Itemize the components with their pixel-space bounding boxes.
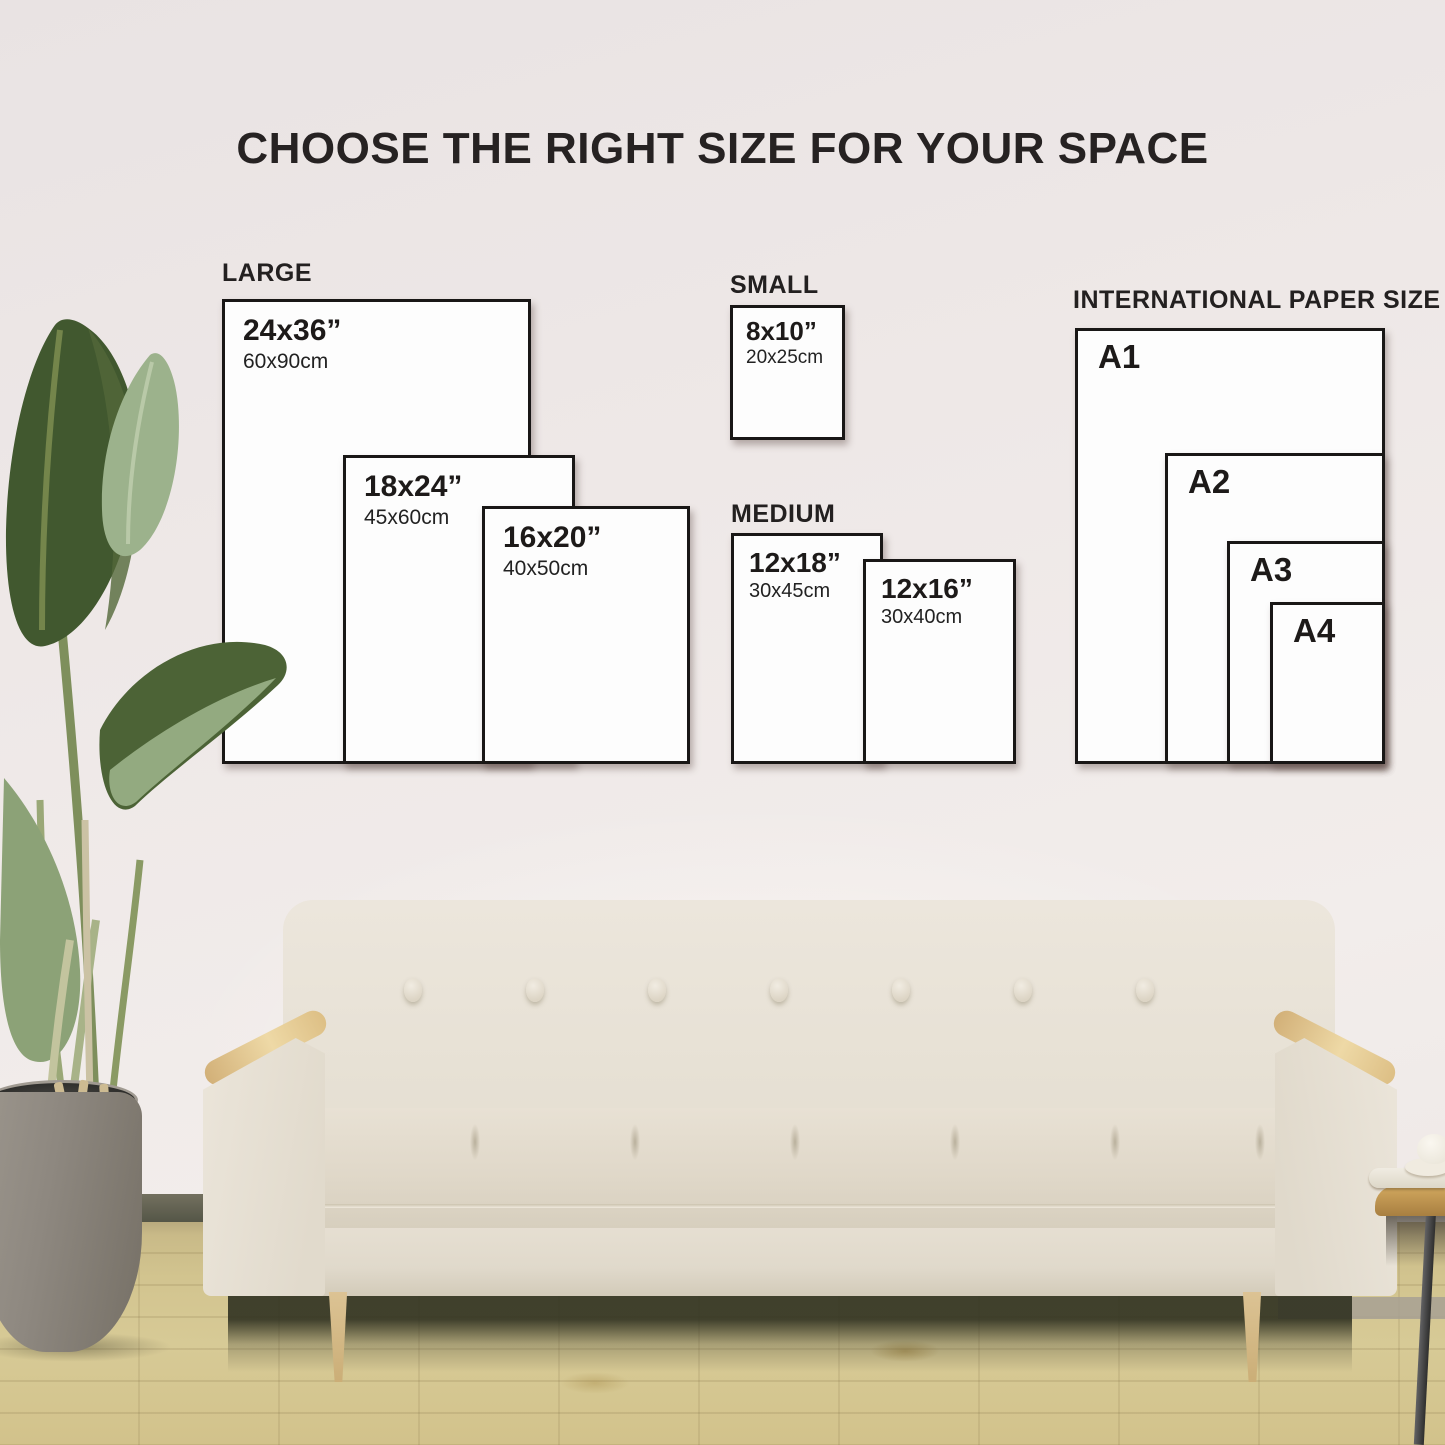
size-box-12x18: 12x18” 30x45cm: [731, 533, 883, 764]
page-title: CHOOSE THE RIGHT SIZE FOR YOUR SPACE: [0, 124, 1445, 174]
size-box-8x10: 8x10” 20x25cm: [730, 305, 845, 440]
cushion-dimple: [950, 1124, 960, 1160]
under-sofa-shadow: [228, 1290, 1352, 1372]
tufting-button: [770, 978, 788, 1002]
tufting-button: [1136, 978, 1154, 1002]
size-cm: 30x40cm: [881, 605, 1013, 629]
size-box-16x20: 16x20” 40x50cm: [482, 506, 690, 764]
size-name: A4: [1293, 612, 1382, 650]
sofa-base: [242, 1226, 1328, 1296]
potted-plant: [0, 300, 310, 1100]
cushion-dimple: [630, 1124, 640, 1160]
group-label-international: INTERNATIONAL PAPER SIZE: [1073, 286, 1441, 315]
size-inches: 8x10”: [746, 317, 842, 347]
size-name: A1: [1098, 338, 1382, 376]
size-inches: 12x18”: [749, 547, 880, 579]
group-label-medium: MEDIUM: [731, 500, 835, 529]
group-label-large: LARGE: [222, 259, 312, 288]
size-cm: 40x50cm: [503, 556, 687, 581]
size-inches: 16x20”: [503, 521, 687, 556]
size-cm: 30x45cm: [749, 579, 880, 603]
floor-stain: [560, 1372, 630, 1394]
table-shadow: [1386, 1210, 1445, 1266]
size-inches: 18x24”: [364, 470, 572, 505]
size-cm: 20x25cm: [746, 347, 842, 370]
cushion-dimple: [470, 1124, 480, 1160]
size-name: A2: [1188, 463, 1382, 501]
tufting-button: [892, 978, 910, 1002]
cushion-dimple: [1110, 1124, 1120, 1160]
room-scene: CHOOSE THE RIGHT SIZE FOR YOUR SPACE LAR…: [0, 0, 1445, 1445]
seat-cushion: [277, 1108, 1323, 1228]
size-box-12x16: 12x16” 30x40cm: [863, 559, 1016, 764]
size-name: A3: [1250, 551, 1382, 589]
coffee-cup: [1417, 1134, 1445, 1164]
planter-pot: [0, 1092, 142, 1352]
tufting-button: [1014, 978, 1032, 1002]
size-inches: 12x16”: [881, 573, 1013, 605]
tufting-button: [648, 978, 666, 1002]
tufting-button: [526, 978, 544, 1002]
cushion-dimple: [790, 1124, 800, 1160]
side-table-apron: [1375, 1186, 1445, 1216]
group-label-small: SMALL: [730, 271, 819, 300]
cushion-dimple: [1255, 1124, 1265, 1160]
size-box-a4: A4: [1270, 602, 1385, 764]
tufting-button: [404, 978, 422, 1002]
